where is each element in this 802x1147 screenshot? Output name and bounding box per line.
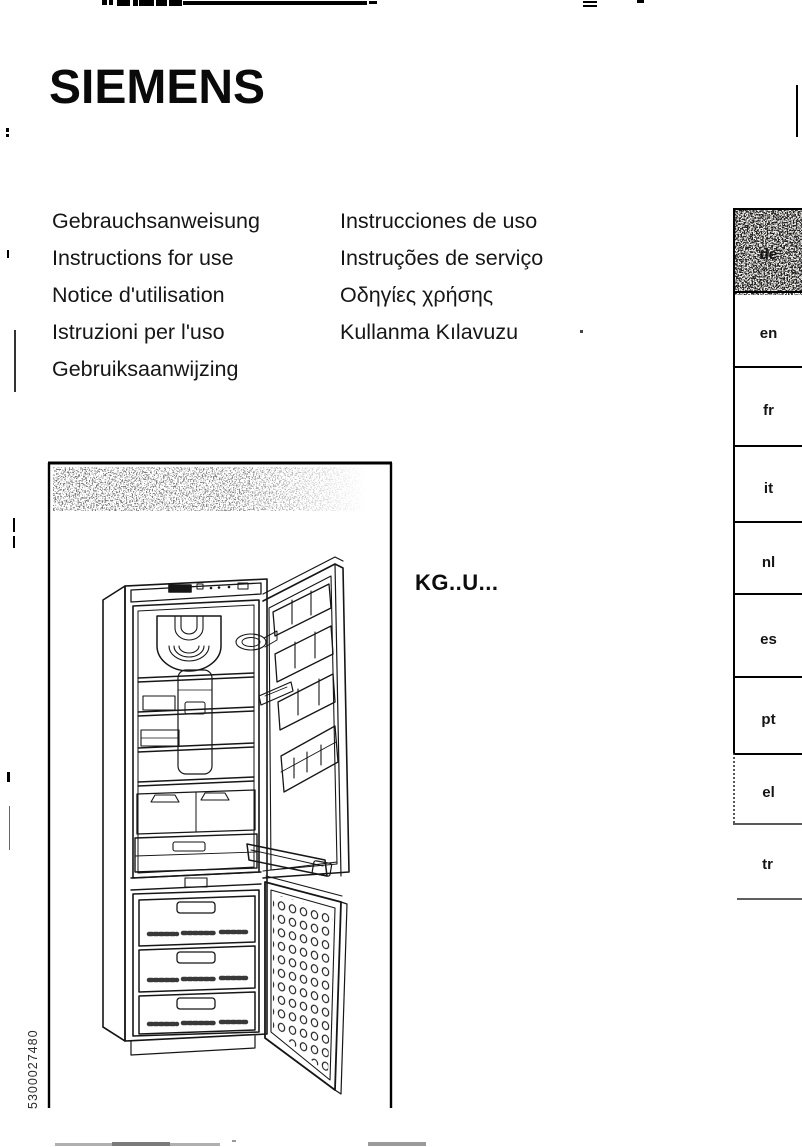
scan-artifact [183,1,367,5]
scan-artifact [637,0,644,3]
tab-label: tr [762,850,773,873]
scan-artifact [796,85,798,137]
language-tab-tr: tr [733,823,802,898]
tab-bar-bottom-line [737,898,802,900]
scan-artifact [13,536,15,548]
title-line-de: Gebrauchsanweisung [52,203,342,240]
scan-noise-band [53,467,383,511]
scan-artifact [156,0,167,6]
scan-artifact [102,0,107,5]
scan-artifact [139,0,154,6]
tab-label: de [760,240,778,263]
language-tab-fr: fr [733,366,802,447]
language-tab-it: it [733,445,802,523]
tab-label: el [762,778,775,801]
language-tab-nl: nl [733,521,802,595]
title-line-it: Istruzioni per l'uso [52,314,342,351]
scan-artifact [232,1140,236,1142]
language-tab-pt: pt [733,676,802,755]
title-line-en: Instructions for use [52,240,342,277]
title-line-pt: Instruções de serviço [340,240,640,277]
model-code-label: KG..U... [415,570,498,596]
brand-logo: SIEMENS [49,60,265,115]
scan-artifact [14,330,16,392]
scan-artifact [583,1,597,3]
title-line-tr: Kullanma Kılavuzu [340,314,640,351]
scan-artifact [7,250,9,258]
title-list-right: Instrucciones de uso Instruções de servi… [340,203,640,351]
language-tab-de: de [733,208,802,293]
title-line-fr: Notice d'utilisation [52,277,342,314]
scan-artifact [9,806,10,850]
title-line-el: Οδηγίες χρήσης [340,277,640,314]
scan-artifact [13,518,15,532]
scan-artifact [6,128,9,132]
scan-artifact [7,772,10,782]
tab-label: nl [762,548,775,571]
scan-artifact [6,134,9,137]
tab-label: pt [761,705,775,728]
language-tab-es: es [733,593,802,678]
scan-artifact [109,0,113,5]
language-tab-en: en [733,291,802,368]
title-list-left: Gebrauchsanweisung Instructions for use … [52,203,342,388]
tab-label: en [760,319,778,342]
title-line-nl: Gebruiksaanwijzing [52,351,342,388]
scan-artifact [169,0,182,6]
tab-label: it [764,474,773,497]
language-tab-el: el [733,753,802,823]
scan-artifact [112,1142,170,1146]
scan-artifact [368,1142,426,1146]
title-line-es: Instrucciones de uso [340,203,640,240]
refrigerator-illustration [45,458,395,1108]
tab-label: fr [763,396,774,419]
tab-label: es [760,625,777,648]
fridge-freezer-drawing [103,557,349,1094]
scan-artifact [117,0,130,6]
document-number: 5300027480 [26,984,40,1109]
scan-artifact [369,1,377,4]
scan-artifact [583,5,597,7]
scan-artifact [133,0,138,6]
